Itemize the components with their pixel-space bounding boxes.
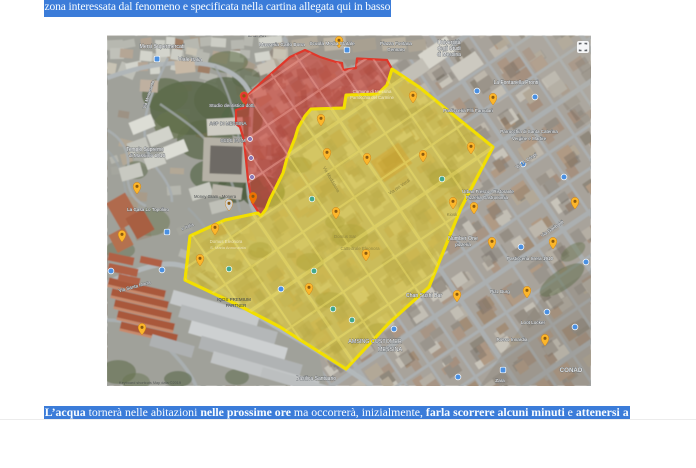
svg-text:Zara: Zara [495,378,505,383]
svg-text:La Casa Lo Topolino: La Casa Lo Topolino [127,207,169,212]
svg-text:AMSING CUSTOMER: AMSING CUSTOMER [348,339,402,345]
svg-text:Pasticceria F.lli Famulari: Pasticceria F.lli Famulari [443,108,493,113]
svg-text:Vergine e Martire: Vergine e Martire [512,136,547,141]
svg-text:Pasticceria Irrera 1910: Pasticceria Irrera 1910 [507,256,554,261]
svg-text:ASP DI MESSINA: ASP DI MESSINA [210,121,248,126]
svg-text:Domus Eleonora: Domus Eleonora [210,239,243,244]
svg-text:Rosso Innardia: Rosso Innardia [497,337,528,342]
svg-text:Studio dentistico dott.: Studio dentistico dott. [209,103,255,109]
svg-text:Loot Locker: Loot Locker [521,320,545,325]
svg-text:Money Gram - Monera: Money Gram - Monera [194,194,237,199]
svg-text:SEDE INAM: SEDE INAM [220,138,245,143]
svg-text:MESSINA: MESSINA [378,347,403,353]
svg-text:Pizzeria Gastronomia: Pizzeria Gastronomia [466,195,509,200]
svg-text:Viale Italia: Viale Italia [178,57,202,64]
svg-text:Gennaro: Gennaro [387,47,405,52]
svg-text:CONAD: CONAD [560,367,583,374]
svg-text:Keyboard shortcuts Map data: Keyboard shortcuts Map data ©2019 [119,381,181,385]
svg-text:Domus Sar: Domus Sar [334,234,356,239]
svg-text:Pizz Burg: Pizz Burg [490,289,510,294]
svg-text:pizzeria: pizzeria [455,242,471,247]
svg-text:Cattedrale Eleonora: Cattedrale Eleonora [340,246,380,251]
svg-text:Parrocchia di Santa Caterina: Parrocchia di Santa Caterina [500,129,558,134]
svg-text:Parrocchia del Carmine: Parrocchia del Carmine [350,95,394,100]
svg-text:La Fontanella Pronti: La Fontanella Pronti [494,80,539,86]
svg-text:Kiosk: Kiosk [447,212,458,217]
svg-text:Urban Fresco - Ristorante: Urban Fresco - Ristorante [462,189,514,194]
svg-text:S. Maria Annunziata: S. Maria Annunziata [210,245,247,250]
svg-text:Basilica Santuario: Basilica Santuario [296,376,336,382]
svg-text:Comune di Messina: Comune di Messina [353,89,392,94]
svg-text:Tempio Supremo: Tempio Supremo [126,147,164,153]
svg-text:Masseria Carlo Bona: Masseria Carlo Bona [259,42,305,48]
svg-text:di Massimo 1015: di Massimo 1015 [129,153,166,159]
svg-text:di Messina: di Messina [437,52,461,58]
svg-text:PARTNER: PARTNER [226,303,247,308]
svg-text:IL SPAR: IL SPAR [248,33,267,39]
svg-text:IQOS PREMIUM: IQOS PREMIUM [217,297,251,302]
svg-text:Chan Sushi Bar: Chan Sushi Bar [406,293,443,299]
svg-text:Scuola Media Statale: Scuola Media Statale [309,41,355,47]
svg-text:Mersi Supermercati: Mersi Supermercati [140,44,185,50]
svg-text:Piazza Fontana: Piazza Fontana [380,41,412,46]
